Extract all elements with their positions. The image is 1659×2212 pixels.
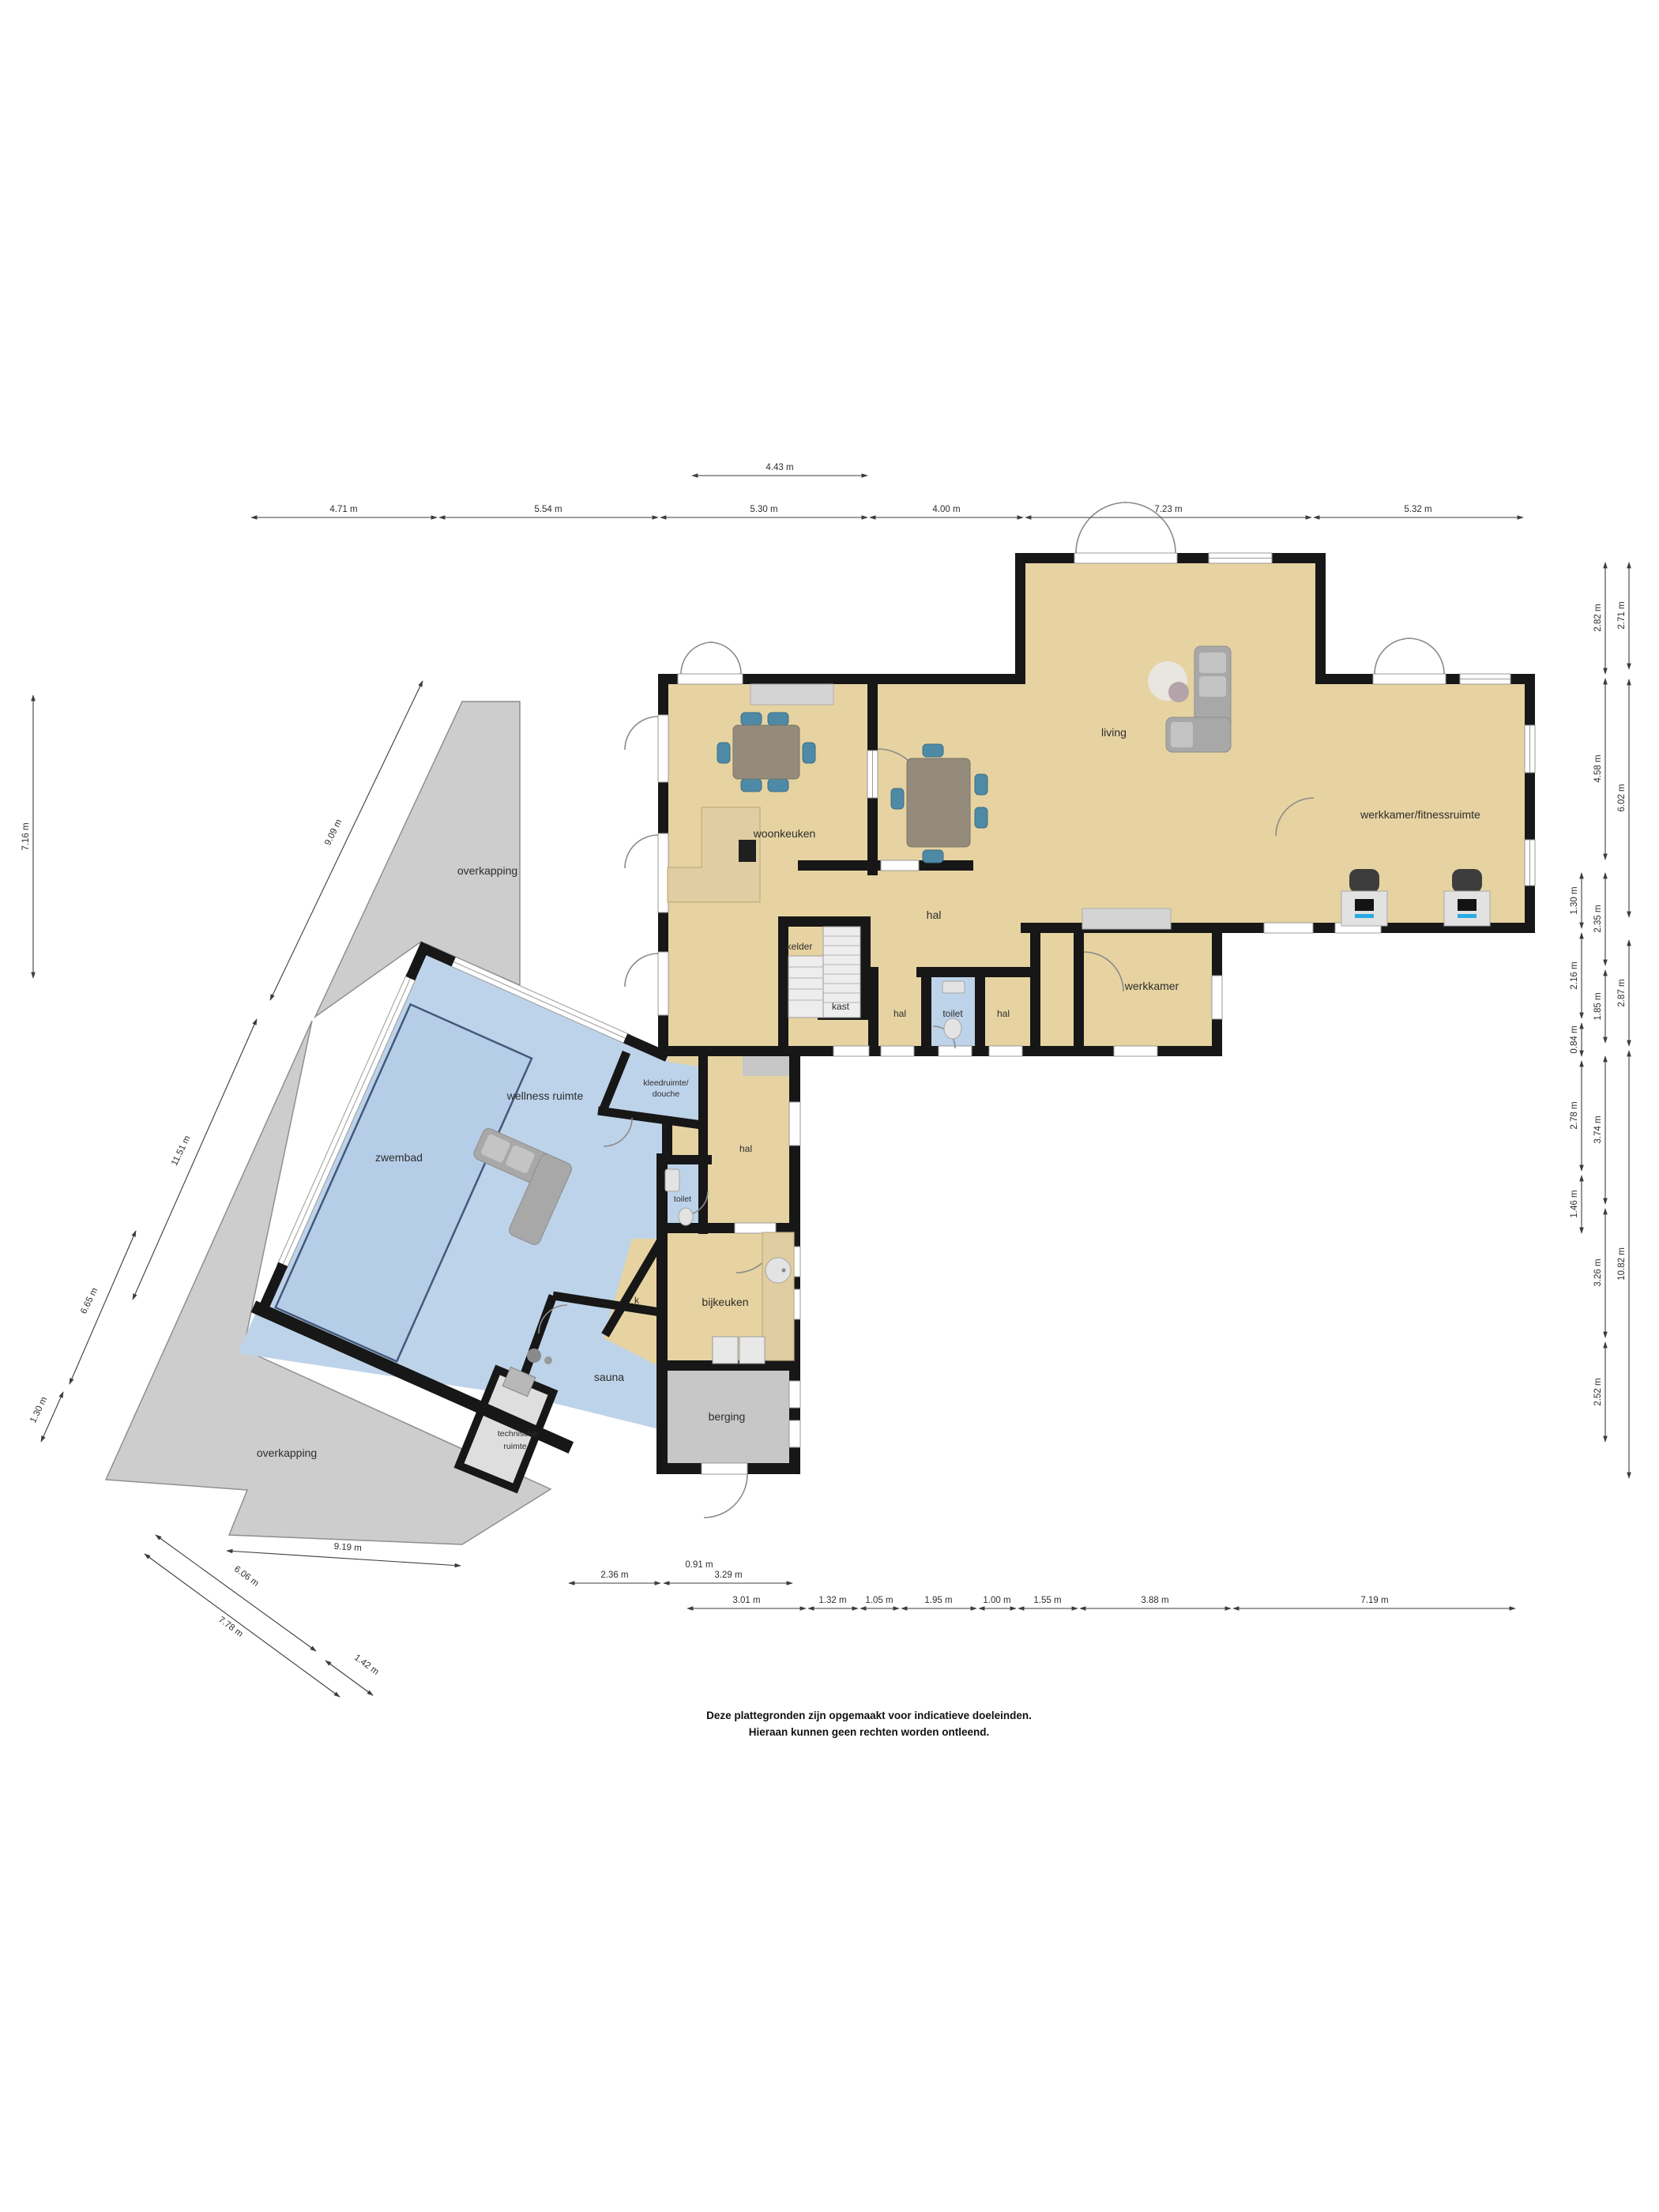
dim-label: 1.05 m bbox=[865, 1596, 893, 1605]
room-label-toilet-upper: toilet bbox=[942, 1008, 963, 1019]
dim-label: 3.29 m bbox=[714, 1571, 742, 1580]
room-label-overkapping-north: overkapping bbox=[457, 864, 517, 877]
dim-label: 2.71 m bbox=[1617, 601, 1627, 629]
dim-label: 1.32 m bbox=[818, 1596, 846, 1605]
toilet-bowl bbox=[944, 1018, 961, 1039]
room-label-bijkeuken: bijkeuken bbox=[702, 1296, 748, 1308]
dim-label: 1.30 m bbox=[1570, 886, 1579, 914]
sink bbox=[942, 981, 965, 993]
toilet-bowl bbox=[679, 1208, 693, 1225]
sideboard bbox=[1082, 908, 1171, 929]
room-label-kleedruimte-2: douche bbox=[653, 1089, 680, 1099]
room-label-berging: berging bbox=[709, 1410, 746, 1423]
room-label-hal-main: hal bbox=[927, 908, 942, 921]
dim-label: 2.82 m bbox=[1593, 604, 1603, 631]
dim-label: 4.00 m bbox=[932, 505, 960, 514]
dim-label: 1.85 m bbox=[1593, 992, 1603, 1020]
disclaimer-line-2: Hieraan kunnen geen rechten worden ontle… bbox=[749, 1726, 990, 1738]
sink bbox=[665, 1169, 679, 1191]
dim-label: 10.82 m bbox=[1617, 1247, 1627, 1281]
dim-label: 5.54 m bbox=[534, 505, 562, 514]
room-label-wellness: wellness ruimte bbox=[506, 1089, 584, 1102]
room-label-zwembad: zwembad bbox=[375, 1151, 423, 1164]
cooktop bbox=[739, 840, 756, 862]
room-label-overkapping-south: overkapping bbox=[257, 1446, 317, 1459]
room-label-werkkamer: werkkamer bbox=[1124, 980, 1179, 992]
dim-label: 7.19 m bbox=[1360, 1596, 1388, 1605]
dim-label: 4.43 m bbox=[766, 463, 793, 472]
room-label-technische-1: technische bbox=[498, 1429, 537, 1439]
dim-label: 9.19 m bbox=[333, 1542, 362, 1553]
room-label-hal-lower: hal bbox=[739, 1143, 752, 1154]
dim-label: 3.26 m bbox=[1593, 1258, 1603, 1286]
dim-label: 1.55 m bbox=[1033, 1596, 1061, 1605]
floorplan-page: woonkeuken living werkkamer/fitnessruimt… bbox=[0, 0, 1659, 2212]
dim-label: 1.00 m bbox=[983, 1596, 1010, 1605]
dim-label: 3.88 m bbox=[1141, 1596, 1168, 1605]
dim-label: 6.02 m bbox=[1617, 784, 1627, 811]
dim-label: 4.71 m bbox=[329, 505, 357, 514]
round-sink bbox=[766, 1258, 791, 1283]
room-label-living: living bbox=[1101, 726, 1127, 739]
bijkeuken-counter bbox=[762, 1232, 794, 1360]
dim-label: 2.87 m bbox=[1617, 979, 1627, 1006]
room-label-kast: kast bbox=[832, 1001, 850, 1012]
room-label-toilet-lower: toilet bbox=[674, 1194, 691, 1204]
room-label-woonkeuken: woonkeuken bbox=[753, 827, 816, 840]
dryer bbox=[739, 1337, 765, 1364]
dim-label: 0.91 m bbox=[685, 1560, 713, 1570]
room-label-kleedruimte-1: kleedruimte/ bbox=[643, 1078, 688, 1088]
room-label-kelder: kelder bbox=[787, 941, 813, 952]
dim-label: 1.46 m bbox=[1570, 1190, 1579, 1217]
room-label-technische-2: ruimte bbox=[503, 1442, 526, 1451]
dim-label: 2.16 m bbox=[1570, 961, 1579, 989]
page-background bbox=[0, 0, 1659, 2212]
room-label-werkkamer-fitness: werkkamer/fitnessruimte bbox=[1360, 808, 1480, 821]
dim-label: 3.74 m bbox=[1593, 1115, 1603, 1143]
washer bbox=[713, 1337, 738, 1364]
room-label-hal-a: hal bbox=[893, 1008, 906, 1019]
dim-label: 7.16 m bbox=[21, 822, 31, 850]
dim-label: 0.84 m bbox=[1570, 1025, 1579, 1053]
dim-label: 2.35 m bbox=[1593, 905, 1603, 932]
dim-label: 1.95 m bbox=[924, 1596, 952, 1605]
dim-label: 2.52 m bbox=[1593, 1378, 1603, 1405]
dim-label: 3.01 m bbox=[732, 1596, 760, 1605]
dim-label: 5.32 m bbox=[1404, 505, 1431, 514]
floorplan-canvas: woonkeuken living werkkamer/fitnessruimt… bbox=[0, 0, 1659, 2212]
dim-label: 2.78 m bbox=[1570, 1101, 1579, 1129]
room-label-sauna: sauna bbox=[594, 1371, 624, 1383]
room-label-hal-b: hal bbox=[997, 1008, 1010, 1019]
dim-label: 5.30 m bbox=[750, 505, 777, 514]
dim-label: 4.58 m bbox=[1593, 754, 1603, 782]
disclaimer-line-1: Deze plattegronden zijn opgemaakt voor i… bbox=[706, 1710, 1032, 1721]
room-label-k: k bbox=[634, 1295, 640, 1306]
dim-label: 7.23 m bbox=[1154, 505, 1182, 514]
dim-label: 2.36 m bbox=[600, 1571, 628, 1580]
kitchen-counter bbox=[750, 684, 833, 705]
